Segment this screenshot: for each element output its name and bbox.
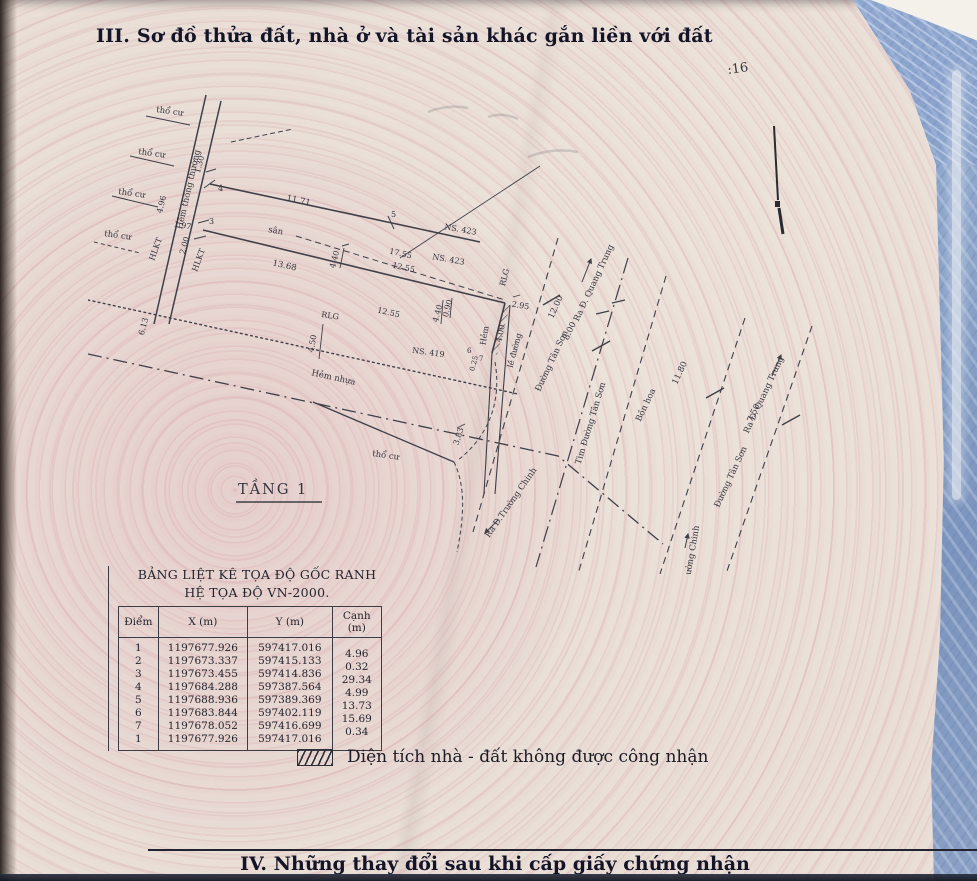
point-label: 5 [391, 210, 396, 219]
cell-x: 1197684.288 [158, 681, 247, 694]
cell-y: 597416.699 [248, 720, 333, 733]
edge-value: 0.32 [345, 661, 368, 674]
road-edge-dashed [660, 318, 745, 574]
dim-label: 17.55 [388, 247, 412, 261]
corner-arc-dashed [454, 462, 463, 552]
road-tick [596, 311, 609, 314]
dim-label: 11.71 [285, 194, 311, 209]
road-centerline-label: Tim Đường Tân Sơn [573, 380, 609, 465]
edge-value: 4.99 [345, 687, 368, 700]
coordinate-table-block: BẢNG LIỆT KÊ TỌA ĐỘ GỐC RANH HỆ TỌA ĐỘ V… [108, 566, 396, 751]
hlkt-label: HLKT [190, 247, 207, 273]
dashed-boundary [231, 129, 293, 142]
cell-x: 1197673.455 [158, 668, 247, 681]
road-labels-group: 12.00 8.00 Đường Tân Sơn Ra Đ. Quang Tru… [483, 243, 787, 574]
cell-y: 597402.119 [248, 707, 333, 720]
yard-label: sân [267, 224, 284, 238]
direction-label: Ra Đ. Quang Trung [742, 355, 787, 435]
corner-tick [194, 236, 206, 239]
corner-tick [206, 169, 216, 172]
road-tick [706, 388, 724, 398]
cell-y: 597387.564 [248, 681, 333, 694]
plot-boundary-group: 3 4 5 6 7 11.71 13.68 17.55 12.55 12.55 … [88, 155, 663, 552]
plot-north-boundary [210, 184, 480, 242]
leader-line [400, 166, 540, 258]
dim-label: 12.55 [376, 306, 400, 320]
edge-value: 13.73 [342, 700, 372, 713]
col-header-point: Điểm [119, 607, 159, 638]
cell-point: 5 [119, 694, 159, 707]
cell-y: 597389.369 [248, 694, 333, 707]
faint-stamp: :16 [726, 62, 749, 78]
dim-label: 3.83 [452, 426, 466, 446]
col-header-y: Y (m) [248, 607, 333, 638]
legend-label: Diện tích nhà - đất không được công nhận [347, 747, 708, 767]
point-label: 3 [209, 217, 214, 226]
section-3-title: III. Sơ đồ thửa đất, nhà ở và tài sản kh… [96, 25, 713, 47]
point-label: 4 [218, 184, 223, 193]
fold-mark [774, 126, 778, 200]
page-bottom-edge [0, 874, 977, 881]
dim-label: 13.68 [271, 259, 297, 274]
hatch-swatch-icon [297, 749, 333, 766]
road-name-label: Đường Tân Sơn [712, 444, 750, 509]
dim-label: 4.40 [328, 250, 341, 270]
coordinate-table: Điểm X (m) Y (m) Cạnh (m) 1 1197677.926 … [118, 606, 382, 751]
road-tick [782, 415, 800, 425]
road-name-label: Đường Tân Sơn [533, 328, 571, 393]
cell-x: 1197677.926 [158, 733, 247, 751]
land-use-label: thổ cư [372, 447, 401, 463]
neighbor-boundary-tick [94, 242, 140, 253]
cell-x: 1197677.926 [158, 638, 247, 656]
cell-x: 1197678.052 [158, 720, 247, 733]
road-tick [612, 300, 625, 303]
table-row: 2 1197673.337 597415.133 4.96 [119, 655, 382, 668]
cell-point: 1 [119, 733, 159, 751]
direction-label: Ra Đ.Trường Chinh [483, 465, 540, 540]
background-highlight [952, 70, 961, 500]
cell-y: 597415.133 [248, 655, 333, 668]
table-row: 1 1197677.926 597417.016 [119, 638, 382, 656]
direction-label: Ra Đ.Trường Chinh [677, 524, 702, 574]
dim-label: 12.00 [547, 294, 566, 320]
small-alley-label: Hẻm [478, 325, 490, 346]
road-limit-label: RLG [498, 268, 511, 287]
floor-label: TẦNG 1 [238, 478, 308, 498]
coordinate-table-title-line1: BẢNG LIỆT KÊ TỌA ĐỘ GỐC RANH [118, 566, 396, 584]
fold-mark [779, 208, 783, 234]
land-use-label: thổ cư [156, 103, 185, 119]
flower-bed-label: Bồn hoa [633, 387, 658, 424]
table-row: 4 1197684.288 597387.564 29.34 [119, 681, 382, 694]
cell-point: 7 [119, 720, 159, 733]
dim-label: 12.55 [391, 261, 415, 275]
dim-label: 2.95 [511, 300, 530, 312]
cell-point: 4 [119, 681, 159, 694]
house-number-label: NS. 423 [432, 252, 466, 267]
cell-point: 1 [119, 638, 159, 656]
direction-arrow [685, 534, 688, 548]
dim-label: 4.00 [494, 324, 507, 343]
dim-label: 2.00 [178, 236, 191, 256]
cell-y: 597414.836 [248, 668, 333, 681]
plot-south-boundary [203, 230, 505, 303]
table-row: 7 1197678.052 597416.699 15.69 [119, 720, 382, 733]
cell-y: 597417.016 [248, 638, 333, 656]
west-alley-group: Hẻm thông thường thổ cư thổ cư thổ cư th… [94, 95, 293, 324]
cell-x: 1197673.337 [158, 655, 247, 668]
cell-point: 6 [119, 707, 159, 720]
asphalt-alley-label: Hẻm nhựa [311, 367, 357, 387]
neighbor-boundary-tick [146, 116, 190, 125]
faint-pencil-marks [428, 107, 578, 157]
road-limit-label: RLG [321, 310, 340, 321]
house-number-label: NS. 419 [412, 346, 445, 359]
section-4-title: IV. Những thay đổi sau khi cấp giấy chứn… [150, 853, 840, 875]
curb-label: lề đường [506, 332, 524, 369]
corner-tick [198, 220, 209, 223]
alley-edge-line [169, 101, 221, 324]
hlkt-label: HLKT [147, 236, 164, 262]
misc-marks-group: :16 [428, 62, 783, 234]
dim-label: 11.80 [671, 360, 690, 386]
dim-label: 4.96 [155, 195, 168, 215]
road-limit-dotted-line [88, 300, 518, 394]
legend: Diện tích nhà - đất không được công nhận [297, 747, 708, 767]
coordinate-table-title: BẢNG LIỆT KÊ TỌA ĐỘ GỐC RANH HỆ TỌA ĐỘ V… [118, 566, 396, 601]
dim-bracket [340, 248, 344, 268]
fold-mark [775, 201, 780, 207]
land-use-label: thổ cư [104, 227, 133, 243]
edge-value: 29.34 [342, 674, 372, 687]
point-label: 7 [479, 355, 483, 363]
coordinate-table-title-line2: HỆ TỌA ĐỘ VN-2000. [118, 584, 396, 602]
page-left-edge-shadow [0, 0, 17, 881]
edge-value: 0.34 [345, 726, 368, 739]
point-label: 6 [467, 347, 472, 355]
edge-value: 4.96 [345, 648, 368, 661]
land-plot-diagram: Hẻm thông thường thổ cư thổ cư thổ cư th… [88, 62, 878, 574]
dim-bracket [513, 295, 520, 297]
cell-x: 1197683.844 [158, 707, 247, 720]
small-alley-west-edge [484, 353, 492, 494]
col-header-x: X (m) [158, 607, 247, 638]
cell-point: 3 [119, 668, 159, 681]
direction-label: Ra Đ. Quang Trung [572, 243, 617, 323]
dim-label: 0.25 [468, 355, 480, 372]
col-header-edge: Cạnh (m) [332, 607, 381, 638]
edge-value: 15.69 [342, 713, 372, 726]
cell-x: 1197688.936 [158, 694, 247, 707]
cell-point: 2 [119, 655, 159, 668]
dim-label: 6.13 [137, 317, 150, 337]
dim-bracket [342, 244, 349, 246]
section-divider [148, 849, 977, 851]
direction-arrow [582, 259, 591, 282]
dim-bracket [319, 324, 323, 359]
